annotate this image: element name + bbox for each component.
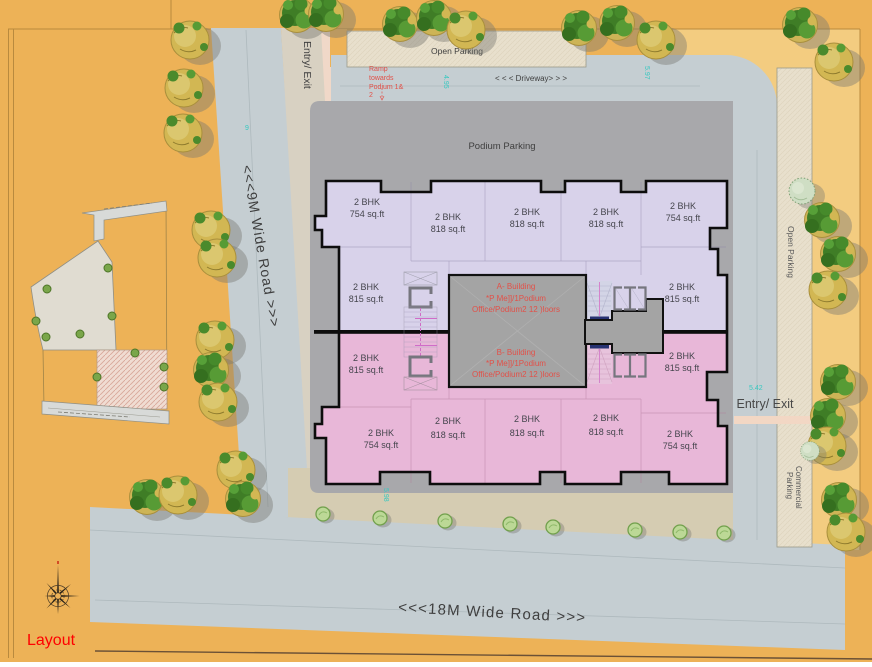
svg-text:*P Me]]/1Podium: *P Me]]/1Podium xyxy=(486,359,546,368)
svg-text:Office/Podium2 12 )loors: Office/Podium2 12 )loors xyxy=(472,370,560,379)
svg-text:2 BHK: 2 BHK xyxy=(593,413,619,423)
svg-text:towards: towards xyxy=(369,75,394,82)
svg-text:818 sq.ft: 818 sq.ft xyxy=(589,219,624,229)
svg-text:815 sq.ft: 815 sq.ft xyxy=(349,365,384,375)
svg-text:Entry/ Exit: Entry/ Exit xyxy=(301,41,313,89)
svg-text:5.98: 5.98 xyxy=(382,488,389,502)
svg-text:*P Me]]/1Podium: *P Me]]/1Podium xyxy=(486,294,546,303)
svg-text:2 BHK: 2 BHK xyxy=(435,212,461,222)
svg-text:818 sq.ft: 818 sq.ft xyxy=(431,224,466,234)
svg-text:2: 2 xyxy=(369,92,373,99)
svg-text:5.42: 5.42 xyxy=(749,385,763,392)
svg-text:2 BHK: 2 BHK xyxy=(435,416,461,426)
svg-text:Office/Podium2 12 )loors: Office/Podium2 12 )loors xyxy=(472,305,560,314)
svg-text:818 sq.ft: 818 sq.ft xyxy=(431,430,466,440)
svg-text:2 BHK: 2 BHK xyxy=(514,207,540,217)
svg-text:Layout: Layout xyxy=(27,632,76,649)
svg-text:815 sq.ft: 815 sq.ft xyxy=(665,363,700,373)
svg-text:Open Parking: Open Parking xyxy=(786,226,796,278)
svg-text:754 sq.ft: 754 sq.ft xyxy=(364,440,399,450)
svg-text:Commercial: Commercial xyxy=(794,466,803,509)
svg-text:2 BHK: 2 BHK xyxy=(667,429,693,439)
svg-text:2 BHK: 2 BHK xyxy=(670,201,696,211)
svg-text:754 sq.ft: 754 sq.ft xyxy=(663,441,698,451)
svg-text:815 sq.ft: 815 sq.ft xyxy=(665,294,700,304)
svg-text:Ramp: Ramp xyxy=(369,66,388,73)
svg-text:818 sq.ft: 818 sq.ft xyxy=(510,219,545,229)
svg-text:9: 9 xyxy=(245,125,249,132)
svg-text:2 BHK: 2 BHK xyxy=(669,351,695,361)
svg-text:754 sq.ft: 754 sq.ft xyxy=(350,209,385,219)
svg-text:A- Building: A- Building xyxy=(497,282,536,291)
svg-text:2 BHK: 2 BHK xyxy=(354,197,380,207)
svg-text:2 BHK: 2 BHK xyxy=(353,282,379,292)
svg-text:Entry/ Exit: Entry/ Exit xyxy=(737,397,794,411)
svg-text:818 sq.ft: 818 sq.ft xyxy=(510,428,545,438)
svg-text:Podium 1&: Podium 1& xyxy=(369,84,404,91)
svg-text:5.97: 5.97 xyxy=(643,66,650,80)
svg-text:< < < Driveway> > >: < < < Driveway> > > xyxy=(495,74,567,83)
svg-text:B- Building: B- Building xyxy=(497,348,536,357)
svg-text:Podium Parking: Podium Parking xyxy=(468,141,535,152)
svg-text:754 sq.ft: 754 sq.ft xyxy=(666,213,701,223)
svg-text:2 BHK: 2 BHK xyxy=(514,414,540,424)
svg-text:4.95: 4.95 xyxy=(442,75,449,89)
svg-text:818 sq.ft: 818 sq.ft xyxy=(589,427,624,437)
svg-text:2 BHK: 2 BHK xyxy=(669,282,695,292)
svg-text:2 BHK: 2 BHK xyxy=(593,207,619,217)
svg-text:2 BHK: 2 BHK xyxy=(353,353,379,363)
svg-text:815 sq.ft: 815 sq.ft xyxy=(349,294,384,304)
svg-text:2 BHK: 2 BHK xyxy=(368,428,394,438)
svg-text:Parking: Parking xyxy=(785,472,794,499)
